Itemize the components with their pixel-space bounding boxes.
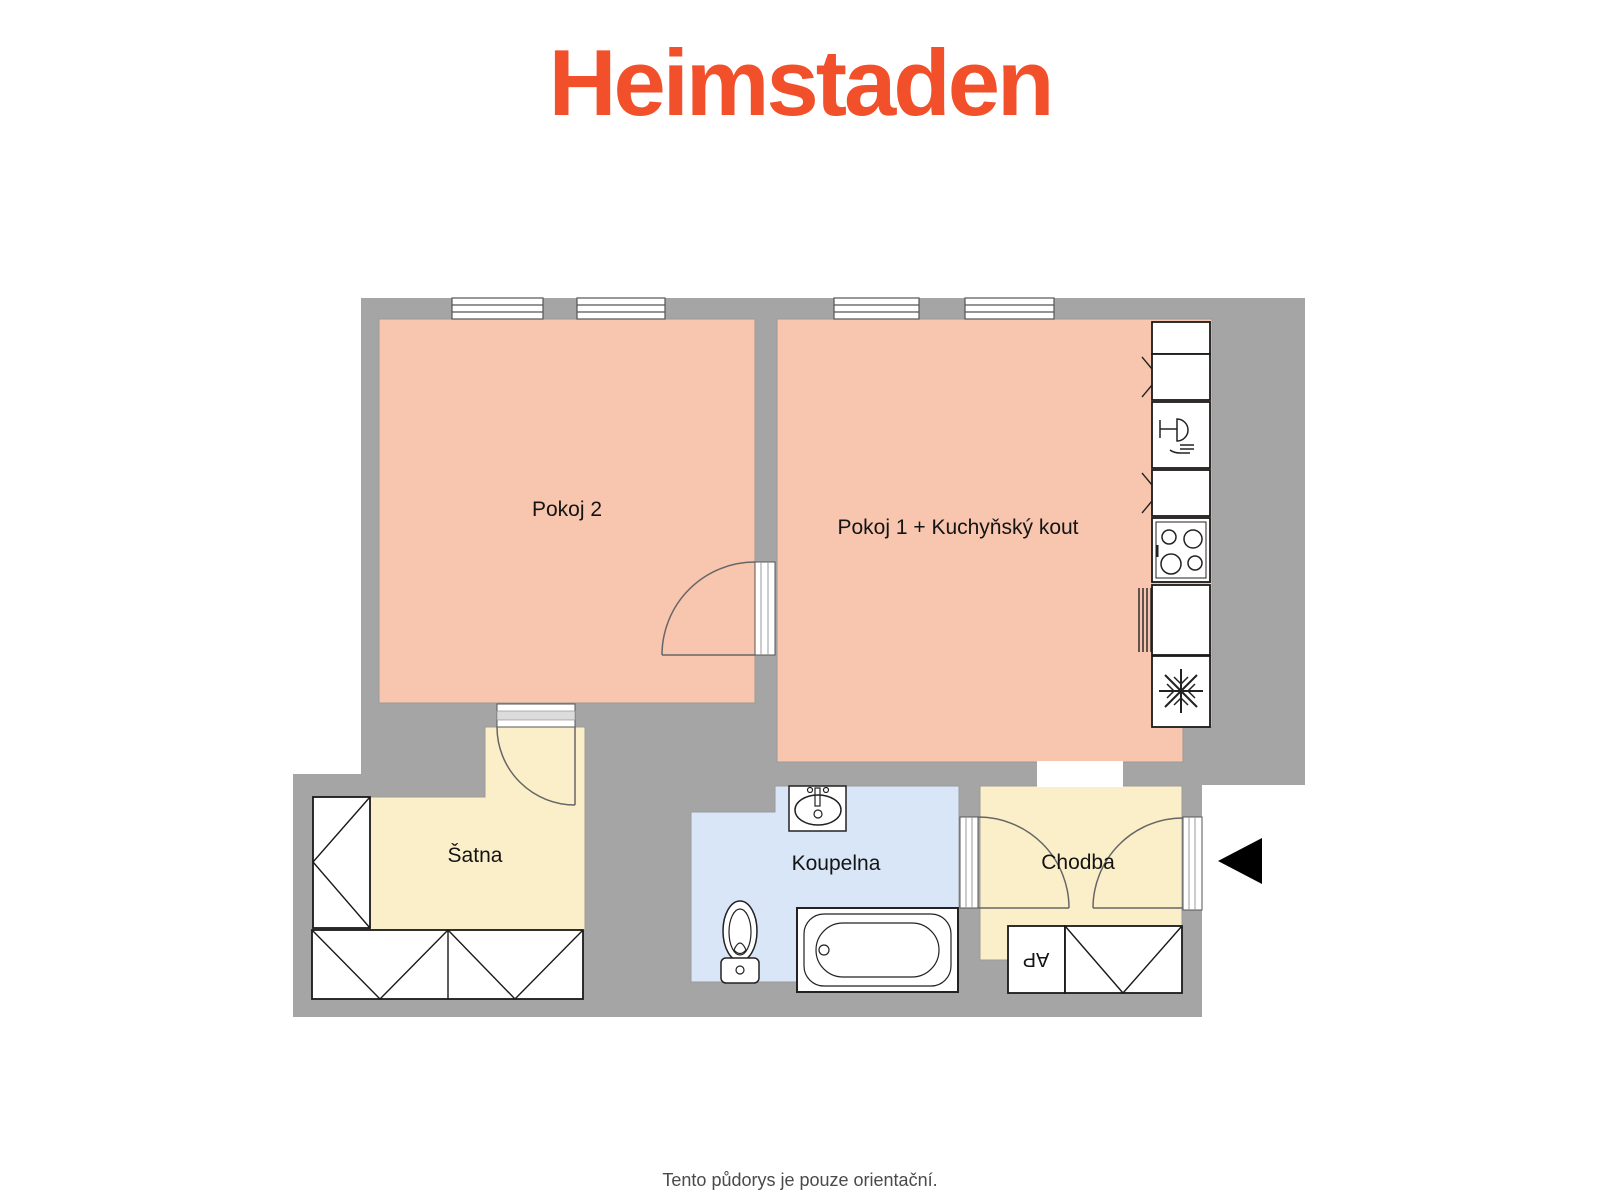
stove-icon: [1152, 518, 1210, 582]
window-icon: [965, 298, 1054, 319]
room-label-pokoj1: Pokoj 1 + Kuchyňský kout: [837, 516, 1078, 539]
room-pokoj1-floor: [777, 319, 1212, 762]
toilet-icon: [721, 901, 759, 983]
room-label-pokoj2: Pokoj 2: [532, 498, 602, 521]
footer-disclaimer: Tento půdorys je pouze orientační.: [0, 1170, 1600, 1191]
floorplan-page: { "header": { "logo_text": "Heimstaden",…: [0, 0, 1600, 1200]
room-label-satna: Šatna: [448, 844, 503, 867]
room-label-koupelna: Koupelna: [792, 852, 881, 875]
bathtub-icon: [797, 908, 958, 992]
sink-icon: [789, 786, 846, 831]
window-icon: [577, 298, 665, 319]
kitchen-cabinet: [1152, 322, 1210, 354]
freezer-snowflake-glyph: [1159, 669, 1203, 713]
entrance-arrow-icon: [1218, 838, 1262, 884]
chodba-opening: [1037, 761, 1123, 787]
window-icon: [834, 298, 919, 319]
window-icon: [452, 298, 543, 319]
wardrobe-icon: [1065, 926, 1182, 993]
room-label-chodba: Chodba: [1041, 851, 1115, 874]
kitchen-corner-cabinet: [1152, 354, 1210, 400]
ap-cabinet: AP: [1008, 926, 1065, 993]
ap-cabinet-label: AP: [1023, 948, 1050, 970]
kitchen-cabinets: [1152, 322, 1210, 727]
kitchen-corner-cabinet: [1152, 470, 1210, 516]
kitchen-cabinet: [1152, 585, 1210, 655]
floorplan-drawing: AP Pokoj 2 Pokoj 1 + Kuchyňský kout Šatn…: [0, 0, 1600, 1200]
